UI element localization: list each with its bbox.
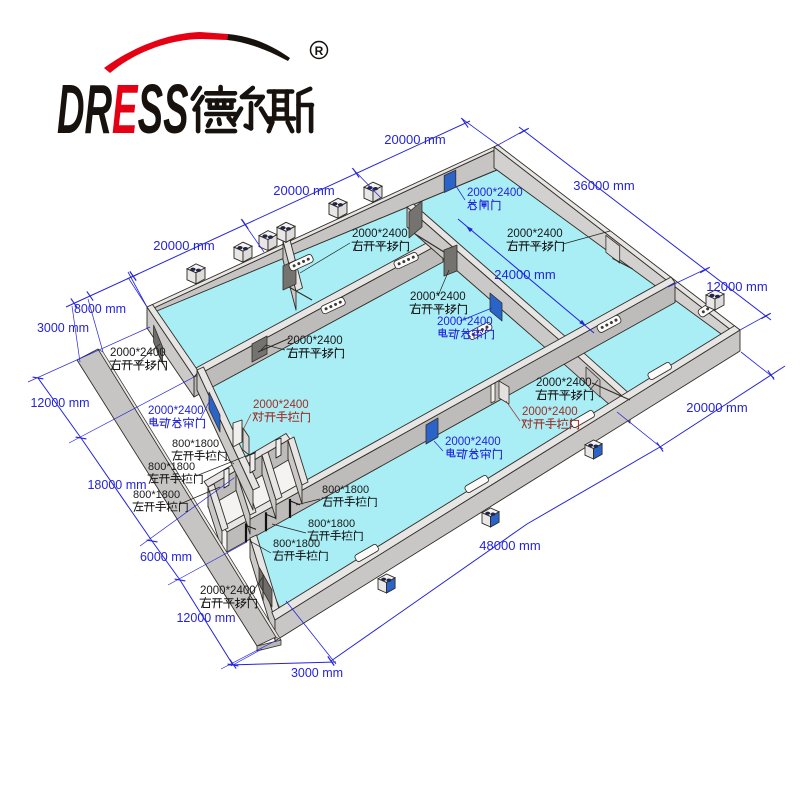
svg-text:36000 mm: 36000 mm xyxy=(573,178,634,193)
svg-text:20000 mm: 20000 mm xyxy=(686,400,747,415)
svg-text:2000*2400: 2000*2400 xyxy=(445,436,501,448)
svg-text:2000*2400: 2000*2400 xyxy=(110,347,166,359)
svg-text:2000*2400: 2000*2400 xyxy=(536,377,592,389)
svg-text:800*1800: 800*1800 xyxy=(172,438,219,450)
svg-text:2000*2400: 2000*2400 xyxy=(522,406,578,418)
svg-text:800*1800: 800*1800 xyxy=(148,461,195,473)
svg-text:2000*2400: 2000*2400 xyxy=(352,228,408,240)
svg-text:800*1800: 800*1800 xyxy=(322,484,369,496)
svg-text:8000 mm: 8000 mm xyxy=(74,302,126,316)
svg-text:2000*2400: 2000*2400 xyxy=(148,405,204,417)
svg-text:R: R xyxy=(315,44,324,58)
svg-text:12000 mm: 12000 mm xyxy=(176,611,235,625)
svg-text:20000 mm: 20000 mm xyxy=(384,132,445,147)
svg-text:800*1800: 800*1800 xyxy=(308,518,355,530)
svg-text:2000*2400: 2000*2400 xyxy=(467,187,523,199)
svg-text:20000 mm: 20000 mm xyxy=(273,183,334,198)
svg-text:12000 mm: 12000 mm xyxy=(706,279,767,294)
svg-text:DR: DR xyxy=(57,70,112,148)
svg-text:2000*2400: 2000*2400 xyxy=(437,316,493,328)
svg-text:2000*2400: 2000*2400 xyxy=(200,585,256,597)
svg-text:12000 mm: 12000 mm xyxy=(30,396,89,410)
svg-text:2000*2400: 2000*2400 xyxy=(507,228,563,240)
svg-text:48000 mm: 48000 mm xyxy=(479,538,540,553)
svg-text:2000*2400: 2000*2400 xyxy=(287,335,343,347)
svg-text:20000 mm: 20000 mm xyxy=(153,238,214,253)
svg-text:3000 mm: 3000 mm xyxy=(37,321,89,335)
svg-text:6000 mm: 6000 mm xyxy=(140,550,192,564)
svg-text:SS: SS xyxy=(138,70,189,148)
svg-text:E: E xyxy=(112,70,138,148)
svg-text:800*1800: 800*1800 xyxy=(273,538,320,550)
svg-text:800*1800: 800*1800 xyxy=(133,489,180,501)
svg-text:3000 mm: 3000 mm xyxy=(291,666,343,680)
svg-text:2000*2400: 2000*2400 xyxy=(410,291,466,303)
svg-text:24000 mm: 24000 mm xyxy=(494,267,555,282)
svg-text:2000*2400: 2000*2400 xyxy=(253,399,309,411)
